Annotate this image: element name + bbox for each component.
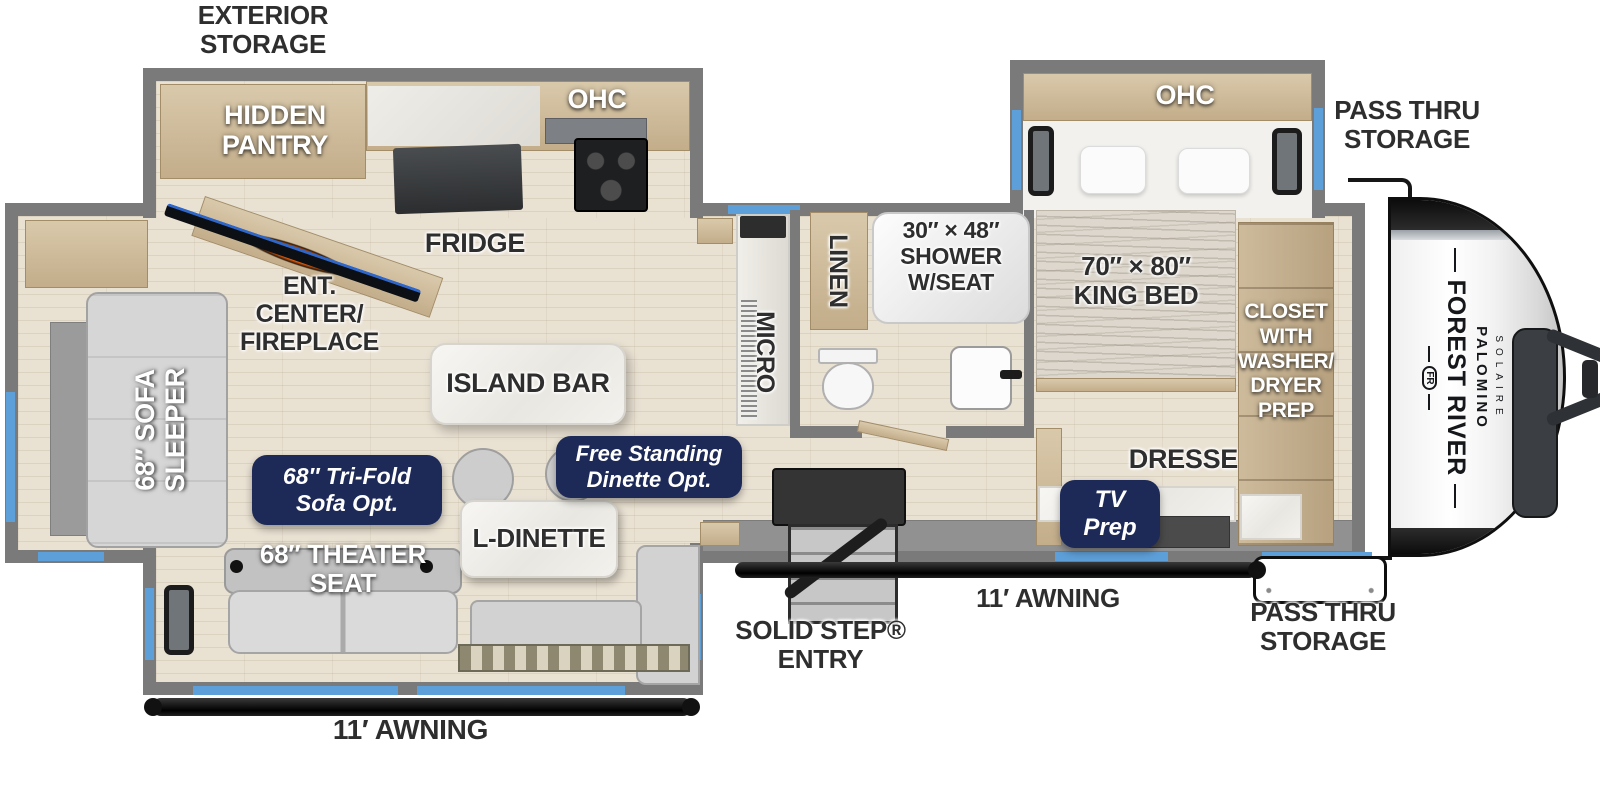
free-standing-dinette-option-badge: Free Standing Dinette Opt. <box>556 436 742 498</box>
island-bar-label: ISLAND BAR <box>438 368 618 398</box>
window-dinette-bottom-b <box>417 686 625 695</box>
bedroom-ohc-label: OHC <box>1145 80 1225 110</box>
toilet-bowl <box>822 362 874 410</box>
forest-river-emblem: FR <box>1422 366 1437 389</box>
linen-label: LINEN <box>826 215 852 327</box>
trifold-sofa-option-badge: 68″ Tri-Fold Sofa Opt. <box>252 455 442 525</box>
l-dinette-label: L-DINETTE <box>466 524 612 553</box>
micro-appliance <box>740 216 786 238</box>
galley-end-cabinet-bottom <box>700 522 740 546</box>
awning-left-endcap-b <box>682 698 700 716</box>
bath-wall-bottom-a <box>790 426 862 438</box>
brand-emblem-row: FR <box>1420 243 1438 513</box>
ent-center-fireplace-label: ENT. CENTER/ FIREPLACE <box>232 272 387 356</box>
tv-prep-badge: TV Prep <box>1060 480 1160 548</box>
micro-label: MICRO <box>751 292 779 412</box>
sofa-sleeper-label: 68″ SOFA SLEEPER <box>130 310 194 550</box>
awning-right-endcap <box>1248 561 1266 579</box>
awning-bar-right <box>735 562 1257 578</box>
brand-manufacturer: FOREST RIVER <box>1442 280 1470 477</box>
kitchen-ohc-label: OHC <box>557 84 637 114</box>
entry-step-well <box>772 468 906 526</box>
exterior-storage-label: EXTERIOR STORAGE <box>173 1 353 59</box>
theater-seat-cushions <box>228 590 458 654</box>
brand-rule-left <box>1454 248 1456 272</box>
brand-manufacturer-row: FOREST RIVER <box>1441 243 1470 513</box>
bedroom-window-right <box>1272 128 1302 195</box>
window-bottom-a <box>1055 552 1168 561</box>
hitch-coupler <box>1582 360 1598 398</box>
pillow-right <box>1178 148 1250 194</box>
brand-block: SOLAIRE PALOMINO FOREST RIVER FR <box>1407 243 1517 513</box>
window-bedslide-left <box>1012 110 1021 190</box>
emblem-rule-right <box>1428 394 1430 410</box>
bedroom-window-left <box>1028 126 1054 196</box>
king-bed-label: 70″ × 80″ KING BED <box>1046 252 1226 310</box>
window-dinette-bottom-a <box>193 686 398 695</box>
window-rear-wall <box>6 392 15 522</box>
awning-right-label: 11′ AWNING <box>968 584 1128 613</box>
rv-floorplan-diagram: HIDDEN PANTRY OHC EXTERIOR STORAGE ENT. … <box>0 0 1600 805</box>
bath-wall-left <box>790 210 800 438</box>
brand-trim: SOLAIRE <box>1493 243 1504 513</box>
pillow-left <box>1080 146 1146 194</box>
brand-rule-right <box>1454 484 1456 508</box>
closet-counter <box>1240 494 1302 540</box>
bed-base <box>1036 378 1236 392</box>
fridge <box>393 144 523 214</box>
dinette-striped-cushion <box>458 644 690 672</box>
window-bottom-rear <box>38 552 104 561</box>
fridge-label: FRIDGE <box>410 228 540 258</box>
stove <box>574 138 648 212</box>
pass-thru-storage-bottom-label: PASS THRU STORAGE <box>1238 598 1408 656</box>
sofa-side-table <box>50 322 88 536</box>
bath-wall-bottom-b <box>946 426 1034 438</box>
awning-left-label: 11′ AWNING <box>328 714 493 745</box>
sink-faucet <box>1000 370 1022 379</box>
sofa-ohc-cabinet <box>25 220 148 288</box>
solid-step-entry-label: SOLID STEP® ENTRY <box>728 616 913 674</box>
awning-left-endcap-a <box>144 698 162 716</box>
hidden-pantry-label: HIDDEN PANTRY <box>200 100 350 160</box>
emblem-rule-left <box>1428 346 1430 362</box>
theater-seat-label: 68″ THEATER SEAT <box>248 540 438 598</box>
pass-thru-storage-top-label: PASS THRU STORAGE <box>1322 96 1492 154</box>
galley-end-cabinet-top <box>697 218 733 244</box>
theater-cupholder-left <box>230 560 243 573</box>
cap-band-bottom <box>1391 528 1563 554</box>
cap-chrome-top <box>1391 230 1563 240</box>
cap-band-top <box>1391 200 1563 230</box>
closet-label: CLOSET WITH WASHER/ DRYER PREP <box>1238 300 1334 424</box>
kitchen-counter-marble <box>368 86 540 146</box>
shower-label: 30″ × 48″ SHOWER W/SEAT <box>875 218 1027 295</box>
dinette-slide-window <box>164 585 194 655</box>
brand-model: PALOMINO <box>1473 243 1490 513</box>
window-dinette-slide-left <box>145 588 154 660</box>
